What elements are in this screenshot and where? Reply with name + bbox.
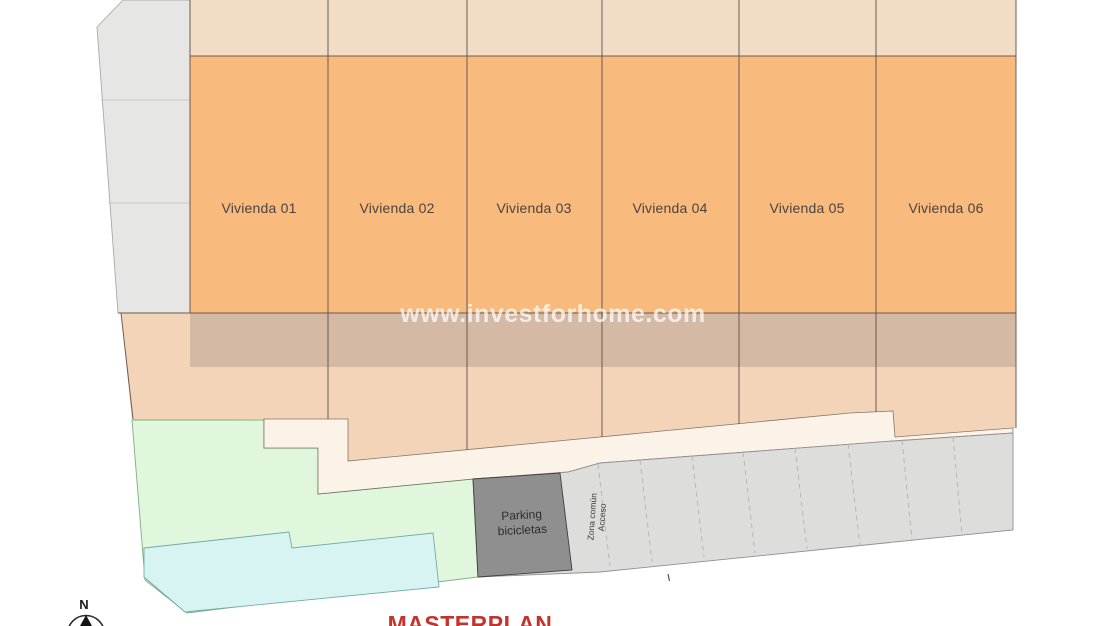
plot-label-vivienda-03: Vivienda 03 [469,200,599,216]
access-corridor-label-inner: Zona común Acceso [585,493,608,542]
rear-strip [190,0,1016,56]
plots-block [190,56,1016,313]
compass-north-label: N [74,597,94,612]
lot-edge-tick [668,574,670,581]
plot-label-vivienda-06: Vivienda 06 [881,200,1011,216]
page-title: MASTERPLAN [370,611,570,626]
bike-parking-label: Parking bicicletas [469,505,574,540]
road-polygon [97,0,190,313]
watermark-text: www.investforhome.com [400,300,706,329]
plot-label-vivienda-04: Vivienda 04 [605,200,735,216]
masterplan-canvas: Vivienda 01 Vivienda 02 Vivienda 03 Vivi… [0,0,1110,626]
plot-label-vivienda-05: Vivienda 05 [742,200,872,216]
pool [144,532,439,612]
plot-label-vivienda-01: Vivienda 01 [194,200,324,216]
plot-label-vivienda-02: Vivienda 02 [332,200,462,216]
